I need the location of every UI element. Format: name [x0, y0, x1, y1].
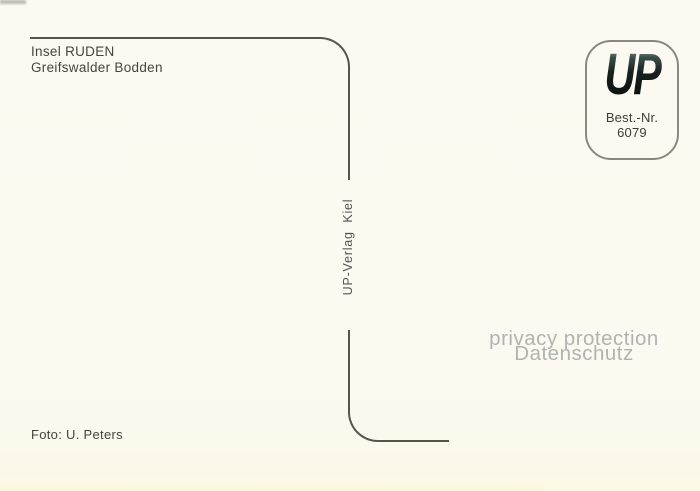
order-number-block: Best.-Nr. 6079: [587, 111, 677, 140]
scan-edge-smudge: [0, 0, 26, 4]
caption-title: Insel RUDEN: [31, 44, 163, 60]
privacy-watermark: privacy protection Datenschutz: [489, 332, 659, 361]
divider-line-bottom: [348, 330, 449, 442]
privacy-watermark-line2: Datenschutz: [489, 347, 659, 362]
caption-block: Insel RUDEN Greifswalder Bodden: [31, 44, 163, 76]
postcard-back-scan: Insel RUDEN Greifswalder Bodden UP Best.…: [0, 0, 700, 491]
stamp-box: UP Best.-Nr. 6079: [585, 40, 679, 160]
caption-subtitle: Greifswalder Bodden: [31, 60, 163, 76]
scan-edge-band: [0, 480, 545, 491]
order-number-label: Best.-Nr.: [587, 111, 677, 126]
order-number-value: 6079: [587, 126, 677, 141]
publisher-imprint: UP-Verlag Kiel: [341, 199, 355, 296]
photo-credit: Foto: U. Peters: [31, 427, 123, 442]
publisher-logo: UP: [599, 49, 666, 101]
